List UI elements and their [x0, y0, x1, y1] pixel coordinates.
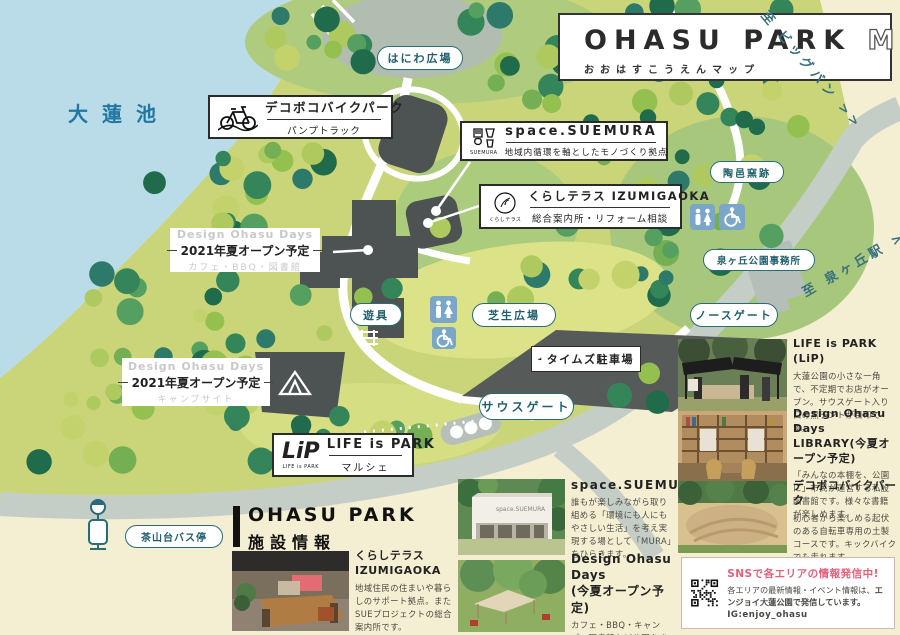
- toilet-icon: [430, 296, 457, 323]
- info-title-2: (今夏オープン予定): [571, 584, 665, 614]
- map-title-box: OHASU PARK MAP おおはすこうえんマップ: [558, 13, 892, 81]
- title-main-text: OHASU PARK: [584, 25, 851, 56]
- sns-desc-1: 各エリアの最新情報・イベント情報は、: [727, 585, 874, 595]
- kurashi-title: くらしテラス IZUMIGAOKA: [528, 188, 672, 204]
- photo-space-suemura: space.SUEMURA: [458, 479, 565, 555]
- photo-kurashi-terrace: [232, 551, 349, 631]
- dash: [118, 382, 128, 383]
- label-box-design-ohasu-days-cafe: Design Ohasu Days 2021年夏オープン予定 カフェ・BBQ・図…: [170, 228, 320, 272]
- sns-info-box: SNSで各エリアの情報発信中! 各エリアの最新情報・イベント情報は、エンジョイ大…: [681, 557, 895, 629]
- place-playground: 遊具: [350, 303, 402, 326]
- suemura-logo: SUEMURA: [470, 127, 497, 156]
- place-park-office: 泉ヶ丘公園事務所: [703, 249, 815, 271]
- decoboko-sub: パンプトラック: [265, 123, 383, 137]
- divider: [267, 119, 381, 120]
- photo-bike-park: [678, 481, 787, 553]
- dod-brand: Design Ohasu Days: [122, 360, 270, 373]
- suemura-pottery-icon: [471, 127, 497, 149]
- suemura-logo-text: SUEMURA: [470, 150, 497, 156]
- divider: [329, 455, 402, 456]
- kurashi-sub: 総合案内所・リフォーム相談: [528, 211, 672, 225]
- info-title-2: LIBRARY(今夏オープン予定): [793, 437, 890, 465]
- kurashi-logo-text: くらしテラス: [489, 216, 521, 223]
- dod-open-text: 2021年夏オープン予定: [132, 374, 261, 391]
- suemura-title: space.SUEMURA: [504, 124, 658, 139]
- bicycle-icon: [218, 102, 258, 132]
- sns-desc: 各エリアの最新情報・イベント情報は、エンジョイ大蓮公園で発信しています。: [727, 584, 886, 609]
- kurashi-logo: くらしテラス: [489, 191, 521, 223]
- info-desc: 地域住民の住まいや暮らしのサポート拠点。またSUEプロジェクトの総合案内所です。: [355, 582, 457, 634]
- lip-sub: マルシェ: [327, 459, 404, 474]
- label-box-times-parking: タイムズ駐車場: [531, 346, 641, 372]
- lip-logo: LiP LIFE is PARK: [282, 441, 320, 470]
- place-kiln-ruins: 陶邑窯跡: [710, 161, 784, 183]
- title-map-outline-text: MAP: [868, 25, 900, 56]
- dod-sub: カフェ・BBQ・図書館: [170, 260, 320, 273]
- place-north-gate: ノースゲート: [690, 303, 778, 327]
- info-title: Design Ohasu Days: [571, 552, 671, 582]
- dod-sub: キャンプサイト: [122, 392, 270, 405]
- dash: [264, 382, 274, 383]
- pond-label: 大蓮池: [68, 98, 170, 127]
- info-desc: 初心者から楽しめる起伏のある自転車専用の土製コースです。キックバイクでも走れます…: [793, 512, 897, 564]
- divider: [530, 207, 670, 208]
- dod-open-text: 2021年夏オープン予定: [181, 242, 310, 259]
- photo-life-is-park: [678, 339, 787, 416]
- map-title-kana: おおはすこうえんマップ: [584, 61, 890, 76]
- times-title: タイムズ駐車場: [547, 351, 634, 367]
- info-item-kurashi: くらしテラス IZUMIGAOKA 地域住民の住まいや暮らしのサポート拠点。また…: [355, 549, 457, 634]
- dod-brand: Design Ohasu Days: [170, 228, 320, 241]
- toilet-icon-north: [690, 204, 715, 230]
- info-title: LIFE is PARK (LiP): [793, 337, 897, 367]
- car-icon: [538, 352, 542, 366]
- place-lawn-plaza: 芝生広場: [472, 303, 556, 327]
- lip-title: LIFE is PARK: [327, 437, 404, 452]
- dash: [313, 250, 323, 251]
- facility-info-heading: OHASU PARK 施設情報: [233, 504, 417, 553]
- photo-dod-library: [678, 411, 787, 484]
- info-title: デコボコバイクパーク: [793, 479, 897, 509]
- wheelchair-icon-north: [719, 204, 745, 230]
- place-south-gate: サウスゲート: [479, 393, 574, 420]
- decoboko-title: デコボコバイクパーク: [265, 97, 383, 116]
- qr-code: [690, 566, 719, 620]
- ohasu-park-map-poster: OHASU PARK MAP おおはすこうえんマップ 大蓮池 至 ビッグバン >…: [0, 0, 900, 635]
- label-box-kurashi-terrace: くらしテラス くらしテラス IZUMIGAOKA 総合案内所・リフォーム相談: [479, 184, 682, 229]
- info-desc: カフェ・BBQ・キャンプ・図書館など公園をまるごと楽しむ!コンセプトの施設がオー…: [571, 619, 673, 635]
- dash: [167, 250, 177, 251]
- lip-logo-subtext: LIFE is PARK: [283, 464, 319, 470]
- kurashi-stamp-icon: [493, 191, 517, 215]
- map-title: OHASU PARK MAP: [584, 25, 890, 56]
- suemura-sub: 地域内循環を軸としたモノづくり拠点: [504, 146, 658, 158]
- label-box-design-ohasu-days-camp: Design Ohasu Days 2021年夏オープン予定 キャンプサイト: [122, 358, 270, 406]
- photo-facade-text: space.SUEMURA: [496, 506, 546, 513]
- label-box-decoboko-bike-park: デコボコバイクパーク パンプトラック: [208, 95, 393, 139]
- label-box-space-suemura: SUEMURA space.SUEMURA 地域内循環を軸としたモノづくり拠点: [460, 121, 668, 161]
- info-title: space.SUEMURA: [571, 477, 673, 493]
- heading-en: OHASU PARK: [248, 504, 417, 526]
- place-haniwa-plaza: はにわ広場: [377, 46, 463, 70]
- info-title: Design Ohasu Days: [793, 407, 886, 435]
- info-item-suemura: space.SUEMURA 誰もが楽しみながら取り組める「環境にも人にもやさしい…: [571, 477, 673, 561]
- wheelchair-icon: [432, 327, 456, 349]
- divider: [506, 142, 656, 143]
- photo-design-ohasu-days: [458, 560, 565, 632]
- place-bus-stop: 茶山台バス停: [125, 525, 223, 548]
- info-title: くらしテラス IZUMIGAOKA: [355, 549, 457, 579]
- sns-instagram-handle: IG:enjoy_ohasu: [727, 610, 886, 620]
- lip-logo-text: LiP: [282, 441, 320, 463]
- sns-title: SNSで各エリアの情報発信中!: [727, 566, 886, 581]
- heading-bar: [233, 506, 240, 547]
- playground-icon: [358, 330, 378, 346]
- label-box-life-is-park: LiP LIFE is PARK LIFE is PARK マルシェ: [272, 433, 414, 477]
- bus-stop-icon: [82, 498, 120, 554]
- info-item-design-ohasu-days: Design Ohasu Days (今夏オープン予定) カフェ・BBQ・キャン…: [571, 551, 673, 635]
